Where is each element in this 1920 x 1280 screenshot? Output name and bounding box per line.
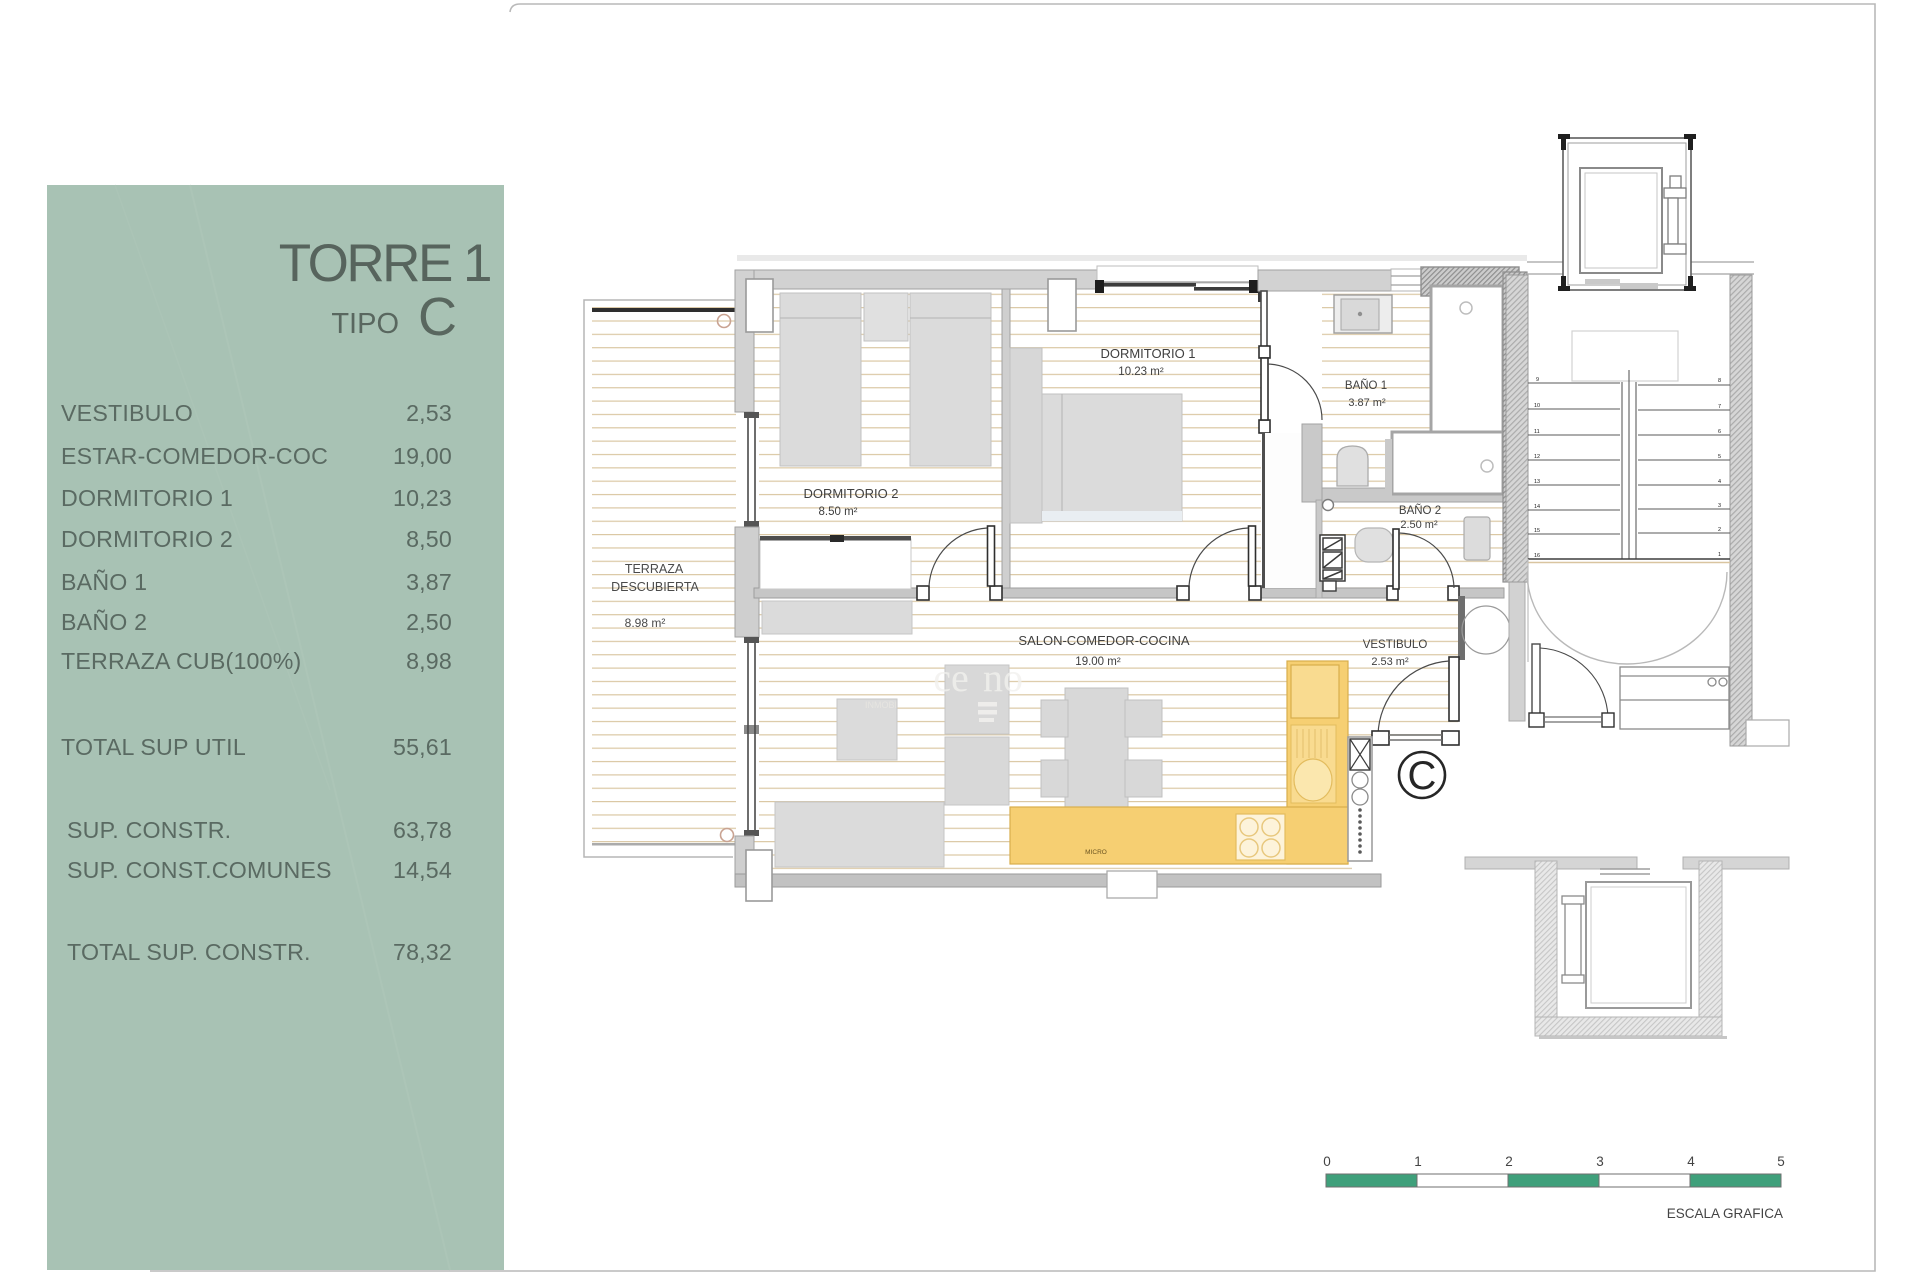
- svg-text:VESTIBULO: VESTIBULO: [1363, 639, 1428, 651]
- svg-text:9: 9: [1536, 377, 1539, 383]
- svg-text:10,23: 10,23: [393, 485, 452, 511]
- svg-text:8: 8: [1718, 378, 1721, 384]
- svg-text:DORMITORIO 2: DORMITORIO 2: [803, 486, 898, 501]
- svg-text:2.53 m²: 2.53 m²: [1371, 656, 1409, 668]
- svg-text:8,98: 8,98: [406, 648, 452, 674]
- svg-text:5: 5: [1777, 1154, 1785, 1169]
- svg-text:TORRE 1: TORRE 1: [279, 234, 490, 293]
- svg-text:2: 2: [1505, 1154, 1513, 1169]
- svg-text:7: 7: [1718, 404, 1721, 410]
- svg-text:BAÑO 1: BAÑO 1: [61, 569, 147, 595]
- svg-text:SUP. CONST.COMUNES: SUP. CONST.COMUNES: [67, 857, 332, 883]
- svg-text:DORMITORIO 2: DORMITORIO 2: [61, 526, 233, 552]
- svg-text:3: 3: [1718, 503, 1721, 509]
- svg-text:16: 16: [1534, 553, 1540, 559]
- svg-text:DORMITORIO 1: DORMITORIO 1: [61, 485, 233, 511]
- svg-text:13: 13: [1534, 479, 1540, 485]
- svg-text:2,50: 2,50: [406, 609, 452, 635]
- svg-text:1: 1: [1718, 552, 1721, 558]
- svg-text:3: 3: [1596, 1154, 1604, 1169]
- svg-text:ESTAR-COMEDOR-COC: ESTAR-COMEDOR-COC: [61, 443, 328, 469]
- svg-text:DORMITORIO 1: DORMITORIO 1: [1100, 346, 1195, 361]
- svg-text:3.87 m²: 3.87 m²: [1348, 397, 1386, 409]
- svg-text:VESTIBULO: VESTIBULO: [61, 400, 193, 426]
- svg-text:TOTAL SUP. CONSTR.: TOTAL SUP. CONSTR.: [67, 939, 311, 965]
- svg-text:C: C: [418, 287, 457, 347]
- svg-text:11: 11: [1534, 429, 1540, 435]
- svg-text:SALON-COMEDOR-COCINA: SALON-COMEDOR-COCINA: [1018, 633, 1190, 648]
- svg-text:TOTAL SUP UTIL: TOTAL SUP UTIL: [61, 734, 246, 760]
- svg-text:19,00: 19,00: [393, 443, 452, 469]
- svg-text:2.50 m²: 2.50 m²: [1400, 519, 1438, 531]
- svg-text:19.00 m²: 19.00 m²: [1075, 656, 1121, 668]
- svg-text:2,53: 2,53: [406, 400, 452, 426]
- svg-text:14: 14: [1534, 504, 1540, 510]
- svg-text:TERRAZA: TERRAZA: [625, 562, 684, 576]
- svg-text:14,54: 14,54: [393, 857, 452, 883]
- svg-text:15: 15: [1534, 528, 1540, 534]
- svg-text:8.50 m²: 8.50 m²: [819, 506, 858, 518]
- svg-text:ESCALA GRAFICA: ESCALA GRAFICA: [1667, 1206, 1783, 1221]
- svg-text:8,50: 8,50: [406, 526, 452, 552]
- svg-text:12: 12: [1534, 454, 1540, 460]
- svg-text:DESCUBIERTA: DESCUBIERTA: [611, 580, 699, 594]
- svg-text:0: 0: [1323, 1154, 1331, 1169]
- svg-text:C: C: [1408, 754, 1437, 798]
- svg-text:10: 10: [1534, 403, 1540, 409]
- svg-text:63,78: 63,78: [393, 817, 452, 843]
- svg-text:no: no: [983, 655, 1023, 700]
- svg-text:6: 6: [1718, 429, 1721, 435]
- svg-text:TERRAZA CUB(100%): TERRAZA CUB(100%): [61, 648, 301, 674]
- svg-text:BAÑO 2: BAÑO 2: [1399, 504, 1441, 517]
- svg-text:4: 4: [1687, 1154, 1695, 1169]
- svg-text:10.23 m²: 10.23 m²: [1118, 366, 1164, 378]
- svg-text:2: 2: [1718, 527, 1721, 533]
- svg-text:8.98 m²: 8.98 m²: [625, 616, 666, 630]
- svg-text:3,87: 3,87: [406, 569, 452, 595]
- svg-text:ce: ce: [933, 655, 969, 700]
- svg-text:1: 1: [1414, 1154, 1422, 1169]
- svg-text:TIPO: TIPO: [331, 308, 399, 340]
- svg-text:MICRO: MICRO: [1085, 849, 1107, 856]
- svg-text:4: 4: [1718, 479, 1721, 485]
- svg-text:5: 5: [1718, 454, 1721, 460]
- svg-text:SUP. CONSTR.: SUP. CONSTR.: [67, 817, 231, 843]
- svg-text:78,32: 78,32: [393, 939, 452, 965]
- svg-text:BAÑO 1: BAÑO 1: [1345, 379, 1387, 392]
- svg-text:BAÑO 2: BAÑO 2: [61, 609, 147, 635]
- svg-text:INMOBI: INMOBI: [865, 700, 897, 710]
- svg-text:55,61: 55,61: [393, 734, 452, 760]
